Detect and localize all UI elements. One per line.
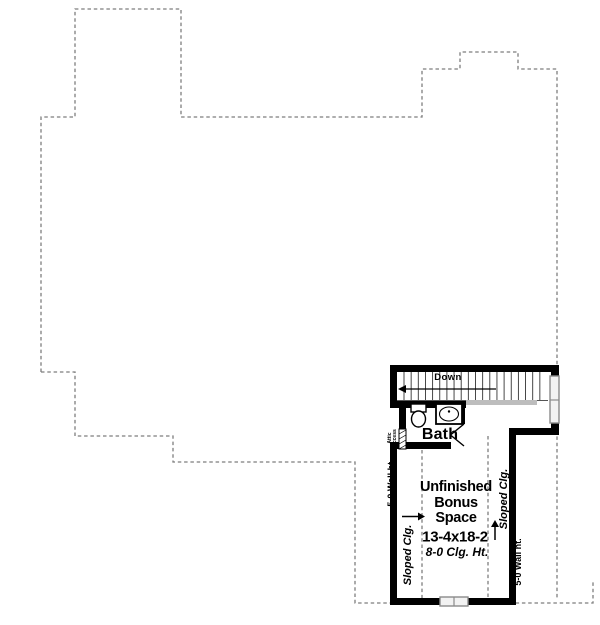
bath-label: Bath <box>422 427 458 443</box>
stair-treads <box>404 372 540 400</box>
toilet-icon <box>411 404 426 427</box>
attic-access-label: Attic Access <box>388 429 398 447</box>
wall-top <box>390 365 558 372</box>
floor-plan-drawing <box>0 0 600 625</box>
window-right <box>550 376 559 423</box>
stairs-down-label: Down <box>434 373 461 383</box>
left-wall-height-label: 5-0 Wall ht. <box>386 459 396 506</box>
bonus-room-dimensions: 13-4x18-2 <box>422 529 488 544</box>
right-wall-height-label: 5-0 Wall ht. <box>513 538 523 585</box>
sink-vanity-icon <box>436 404 462 424</box>
attic-access-hatch <box>399 429 406 449</box>
left-sloped-ceiling-label: Sloped Clg. <box>402 525 414 586</box>
wall-step <box>509 428 559 435</box>
bonus-room-name: Unfinished Bonus Space <box>420 480 492 527</box>
right-sloped-ceiling-label: Sloped Clg. <box>498 469 510 530</box>
stairs <box>397 372 548 405</box>
wall-stair-left <box>390 365 397 408</box>
ceiling-height-note: 8-0 Clg. Ht. <box>426 546 489 558</box>
stair-landing-edge <box>466 400 537 405</box>
floor-plan: Down Bath Attic Access Unfinished Bonus … <box>0 0 600 625</box>
wall-bath-left <box>399 408 406 429</box>
window-bottom <box>440 597 468 606</box>
